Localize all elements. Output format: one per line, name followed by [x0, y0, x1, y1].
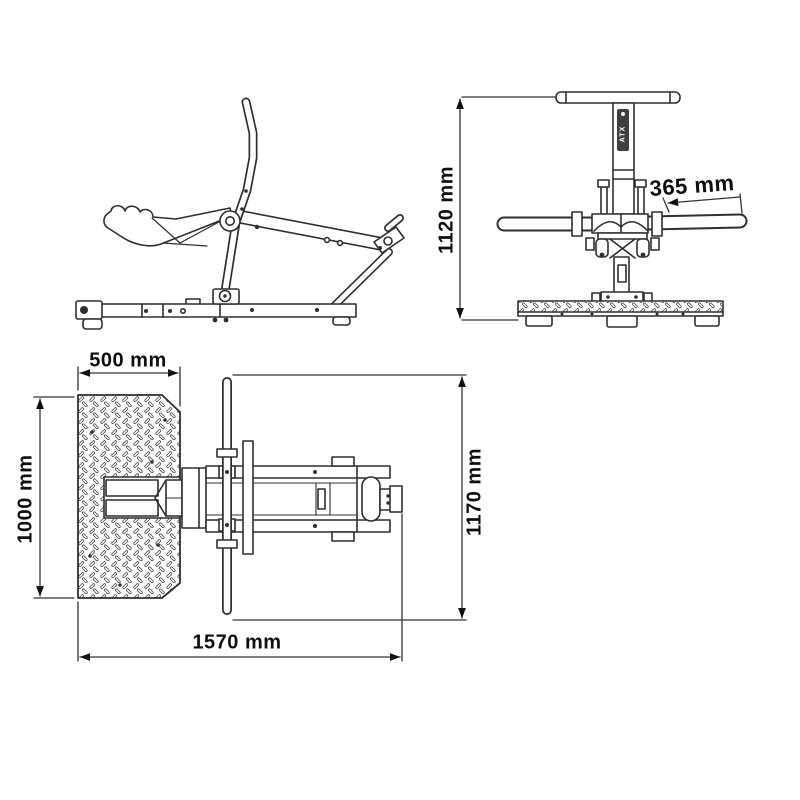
- dimension-line-1000mm: [34, 397, 74, 598]
- top-frame-connector: [182, 468, 206, 528]
- top-handlebar: [217, 382, 237, 610]
- side-handle-post: [224, 102, 253, 298]
- dimension-line-1120mm: [460, 97, 556, 320]
- front-roller-carriage: [586, 238, 659, 258]
- front-view: [460, 92, 742, 327]
- side-pivot-base: [213, 289, 239, 304]
- front-right-handle: [650, 221, 740, 223]
- dimension-label-front-height: 1120 mm: [436, 166, 459, 254]
- side-view: [76, 102, 404, 329]
- dimension-label-platform-width: 500 mm: [89, 350, 167, 373]
- dimension-label-handlebar-span: 1170 mm: [464, 448, 487, 536]
- front-t-handle: [556, 92, 680, 103]
- top-rear-assembly: [362, 477, 402, 521]
- dimension-drawing: 1120 mm 365 mm 500 mm 1000 mm 1570 mm 11…: [0, 0, 800, 800]
- dimension-label-overall-length: 1570 mm: [192, 632, 281, 655]
- front-column: [613, 103, 634, 214]
- atx-logo-text: ATX: [620, 126, 627, 142]
- dimension-label-platform-depth: 1000 mm: [15, 454, 38, 543]
- front-lower-column: [592, 257, 652, 302]
- side-pivot-joint: [220, 211, 240, 231]
- dimension-line-1170mm: [233, 375, 466, 620]
- side-foot-pedal: [104, 206, 232, 246]
- side-lever-arm: [235, 210, 388, 251]
- top-column-bar: [243, 441, 253, 554]
- side-rear-bracket: [374, 218, 404, 253]
- top-view: [34, 367, 466, 661]
- drawing-canvas: [0, 0, 800, 800]
- side-rear-brace: [334, 252, 389, 306]
- front-base-plate: [518, 301, 723, 327]
